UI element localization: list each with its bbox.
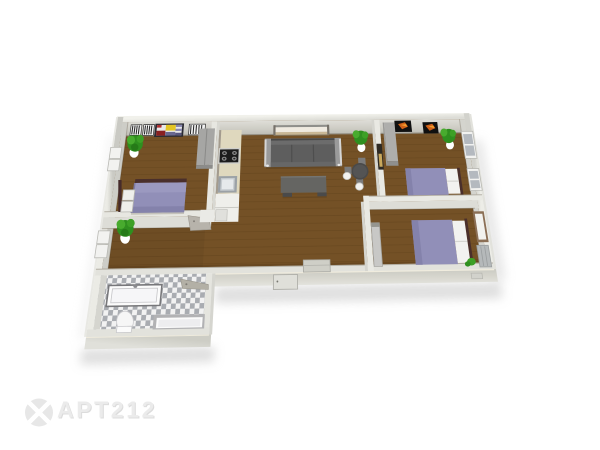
svg-text:APT212: APT212 [57, 397, 157, 423]
